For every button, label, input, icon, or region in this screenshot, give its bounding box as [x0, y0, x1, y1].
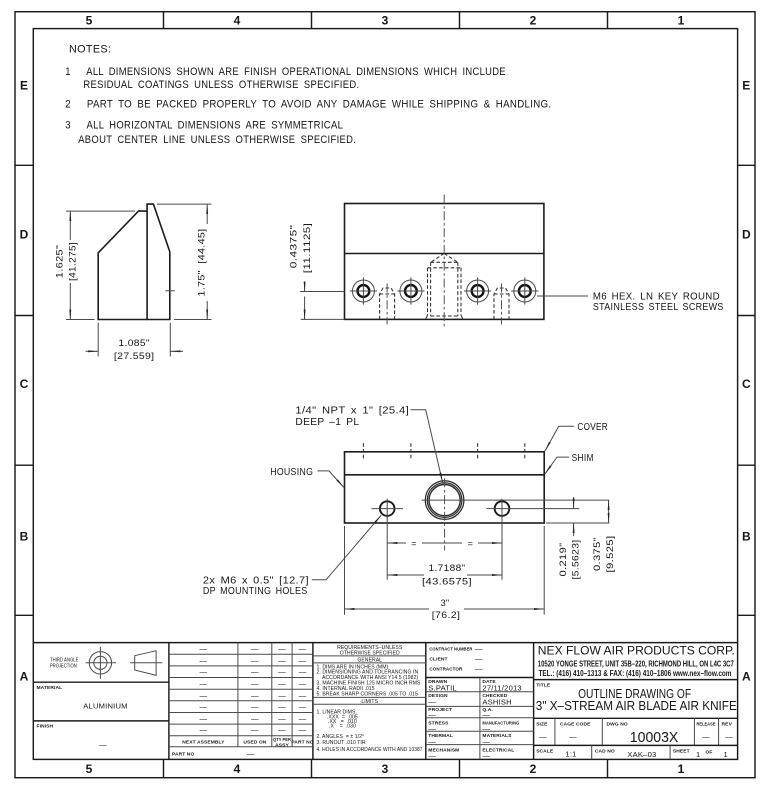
- svg-text:—: —: [278, 668, 286, 677]
- svg-text:NEXT ASSEMBLY: NEXT ASSEMBLY: [182, 740, 225, 746]
- svg-text:3. RUNOUT .010 TIR: 3. RUNOUT .010 TIR: [317, 740, 366, 746]
- svg-text:C: C: [20, 377, 29, 391]
- svg-text:REV: REV: [722, 721, 733, 727]
- svg-text:ASHISH: ASHISH: [482, 698, 511, 707]
- svg-text:—: —: [251, 726, 259, 735]
- svg-text:—: —: [482, 751, 490, 760]
- svg-text:MATERIAL: MATERIAL: [37, 685, 63, 691]
- svg-text:4: 4: [234, 762, 241, 776]
- svg-text:1:1: 1:1: [565, 750, 576, 759]
- svg-text:—: —: [725, 733, 733, 742]
- svg-text:3" X–STREAM AIR BLADE AIR KNIF: 3" X–STREAM AIR BLADE AIR KNIFE: [536, 698, 737, 713]
- svg-text:OF: OF: [706, 749, 713, 755]
- svg-text:2 PART TO BE PACKED PROPERLY: 2 PART TO BE PACKED PROPERLY TO AVOID AN…: [65, 99, 551, 111]
- svg-text:—: —: [99, 740, 107, 749]
- svg-text:—: —: [428, 698, 436, 707]
- svg-text:HOUSING: HOUSING: [270, 467, 313, 478]
- svg-text:[43.6575]: [43.6575]: [422, 577, 472, 587]
- svg-text:—: —: [251, 644, 259, 653]
- svg-text:1.75" [44.45]: 1.75" [44.45]: [197, 229, 207, 297]
- svg-text:—: —: [200, 656, 208, 665]
- svg-text:—: —: [539, 733, 547, 742]
- svg-text:—: —: [702, 733, 710, 742]
- svg-text:2: 2: [530, 13, 537, 27]
- svg-text:RESIDUAL COATINGS UNLESS OTHER: RESIDUAL COATINGS UNLESS OTHERWISE SPECI…: [83, 79, 359, 91]
- svg-text:—: —: [278, 714, 286, 723]
- svg-text:—: —: [299, 714, 307, 723]
- svg-text:—: —: [299, 656, 307, 665]
- svg-text:E: E: [20, 79, 28, 93]
- svg-text:QTY PER: QTY PER: [273, 737, 291, 743]
- svg-text:—: —: [200, 668, 208, 677]
- svg-text:—: —: [251, 691, 259, 700]
- svg-text:—: —: [428, 724, 436, 733]
- svg-text:—: —: [251, 714, 259, 723]
- svg-text:[76.2]: [76.2]: [432, 610, 461, 620]
- svg-text:2: 2: [530, 762, 537, 776]
- svg-text:—: —: [569, 733, 577, 742]
- svg-text:1: 1: [678, 762, 685, 776]
- svg-text:CAD NO: CAD NO: [595, 749, 615, 755]
- svg-text:3": 3": [441, 598, 450, 608]
- svg-text:—: —: [475, 664, 483, 673]
- svg-text:—: —: [200, 714, 208, 723]
- svg-text:PROJECTION: PROJECTION: [50, 664, 77, 670]
- svg-text:CAGE CODE: CAGE CODE: [560, 721, 591, 727]
- svg-text:—: —: [251, 656, 259, 665]
- svg-text:—: —: [200, 644, 208, 653]
- svg-text:2x M6 x 0.5" [12.7]: 2x M6 x 0.5" [12.7]: [203, 576, 309, 587]
- svg-text:C: C: [742, 377, 751, 391]
- svg-text:SCALE: SCALE: [536, 749, 554, 755]
- svg-text:TITLE: TITLE: [536, 682, 551, 688]
- svg-text:—: —: [278, 656, 286, 665]
- svg-text:[11.1125]: [11.1125]: [302, 223, 312, 274]
- svg-text:TEL.: (416) 410–1313 & FAX: (4: TEL.: (416) 410–1313 & FAX: (416) 410–18…: [539, 669, 732, 678]
- svg-text:D: D: [742, 228, 751, 242]
- svg-text:[27.559]: [27.559]: [114, 351, 155, 361]
- svg-text:—: —: [278, 644, 286, 653]
- svg-text:B: B: [20, 530, 29, 544]
- svg-text:1.085": 1.085": [118, 338, 150, 348]
- svg-text:4. HOLES IN ACCORDANCE WITH AN: 4. HOLES IN ACCORDANCE WITH AND 10387: [317, 747, 423, 753]
- svg-text:—: —: [482, 724, 490, 733]
- svg-text:A: A: [742, 670, 751, 684]
- svg-text:COVER: COVER: [577, 422, 608, 433]
- svg-text:PART NO: PART NO: [172, 752, 194, 758]
- svg-text:4: 4: [234, 13, 241, 27]
- svg-text:1.7188": 1.7188": [429, 563, 466, 573]
- svg-text:—: —: [475, 654, 483, 663]
- svg-text:—: —: [482, 737, 490, 746]
- svg-text:S.PATIL: S.PATIL: [428, 683, 457, 692]
- svg-text:PART NO: PART NO: [291, 740, 313, 746]
- svg-text:STAINLESS STEEL SCREWS: STAINLESS STEEL SCREWS: [593, 302, 724, 313]
- svg-text:ASSY: ASSY: [275, 742, 289, 748]
- svg-text:1: 1: [678, 13, 685, 27]
- svg-text:A: A: [20, 670, 29, 684]
- svg-text:—: —: [428, 751, 436, 760]
- svg-text:RELEASE: RELEASE: [697, 721, 716, 727]
- svg-text:NEX FLOW AIR PRODUCTS CORP.: NEX FLOW AIR PRODUCTS CORP.: [538, 643, 735, 657]
- svg-text:—: —: [200, 691, 208, 700]
- svg-text:1: 1: [696, 750, 700, 759]
- svg-text:=: =: [468, 539, 474, 549]
- svg-text:ABOUT CENTER LINE UNLESS OTHER: ABOUT CENTER LINE UNLESS OTHERWISE SPECI…: [78, 134, 356, 146]
- svg-text:—: —: [428, 710, 436, 719]
- svg-text:27/11/2013: 27/11/2013: [482, 683, 521, 692]
- svg-text:0.219": 0.219": [558, 543, 568, 577]
- svg-text:XAK–03: XAK–03: [627, 750, 656, 759]
- svg-text:—: —: [278, 726, 286, 735]
- svg-text:—: —: [482, 710, 490, 719]
- svg-text:D: D: [20, 228, 29, 242]
- svg-text:2. ANGLES = ± 1/2°: 2. ANGLES = ± 1/2°: [317, 734, 365, 740]
- svg-text:[5.5623]: [5.5623]: [571, 540, 581, 580]
- svg-text:—: —: [278, 679, 286, 688]
- svg-text:SHEET: SHEET: [673, 749, 690, 755]
- svg-text:3: 3: [382, 762, 389, 776]
- svg-text:—: —: [200, 702, 208, 711]
- svg-text:CLIENT: CLIENT: [429, 656, 447, 662]
- svg-text:—: —: [299, 644, 307, 653]
- svg-text:—: —: [299, 702, 307, 711]
- svg-text:FINISH: FINISH: [37, 723, 54, 729]
- svg-text:—: —: [200, 726, 208, 735]
- svg-text:CONTRACTOR: CONTRACTOR: [429, 666, 462, 672]
- svg-text:NOTES:: NOTES:: [69, 43, 111, 55]
- svg-text:1.625": 1.625": [55, 245, 65, 279]
- svg-text:[41.275]: [41.275]: [68, 242, 78, 281]
- svg-text:—: —: [247, 750, 255, 759]
- svg-text:1: 1: [724, 750, 728, 759]
- svg-text:—: —: [251, 668, 259, 677]
- svg-text:USED ON: USED ON: [243, 740, 266, 746]
- svg-text:SHIM: SHIM: [572, 453, 594, 464]
- svg-text:3: 3: [382, 13, 389, 27]
- svg-text:—: —: [299, 668, 307, 677]
- svg-text:5. BREAK SHARP CORNERS .005 TO: 5. BREAK SHARP CORNERS .005 TO .015: [317, 692, 419, 698]
- svg-text:.X = .030: .X = .030: [329, 724, 356, 730]
- svg-text:CONTRACT NUMBER: CONTRACT NUMBER: [429, 646, 472, 652]
- svg-text:[9.525]: [9.525]: [605, 536, 615, 573]
- svg-text:—: —: [428, 737, 436, 746]
- svg-text:0.375": 0.375": [592, 537, 602, 571]
- svg-text:DWG NO: DWG NO: [607, 721, 628, 727]
- svg-text:3 ALL HORIZONTAL DIMENSIONS: 3 ALL HORIZONTAL DIMENSIONS ARE SYMMETRI…: [65, 120, 343, 132]
- svg-text:B: B: [742, 530, 751, 544]
- svg-text:DP MOUNTING HOLES: DP MOUNTING HOLES: [203, 586, 308, 597]
- svg-text:1/4" NPT x 1" [25.4]: 1/4" NPT x 1" [25.4]: [295, 405, 409, 416]
- svg-text:—: —: [251, 679, 259, 688]
- svg-text:—: —: [278, 702, 286, 711]
- svg-text:E: E: [742, 79, 750, 93]
- svg-text:=: =: [411, 539, 417, 549]
- svg-text:—: —: [475, 644, 483, 653]
- svg-text:5: 5: [86, 762, 93, 776]
- svg-text:SIZE: SIZE: [536, 721, 548, 727]
- svg-text:—: —: [299, 726, 307, 735]
- svg-text:—: —: [299, 679, 307, 688]
- svg-text:—: —: [251, 702, 259, 711]
- svg-text:—: —: [200, 679, 208, 688]
- svg-text:—: —: [299, 691, 307, 700]
- svg-text:5: 5: [86, 13, 93, 27]
- svg-text:DEEP –1 PL: DEEP –1 PL: [295, 417, 359, 428]
- svg-text:10003X: 10003X: [630, 729, 679, 746]
- svg-text:1 ALL DIMENSIONS SHOWN ARE F: 1 ALL DIMENSIONS SHOWN ARE FINISH OPERAT…: [65, 66, 506, 78]
- svg-text:ALUMINIUM: ALUMINIUM: [83, 702, 127, 711]
- svg-text:10520 YONGE STREET, UNIT 35B–2: 10520 YONGE STREET, UNIT 35B–220, RICHMO…: [538, 660, 734, 669]
- svg-text:0.4375": 0.4375": [289, 225, 299, 269]
- svg-text:—: —: [278, 691, 286, 700]
